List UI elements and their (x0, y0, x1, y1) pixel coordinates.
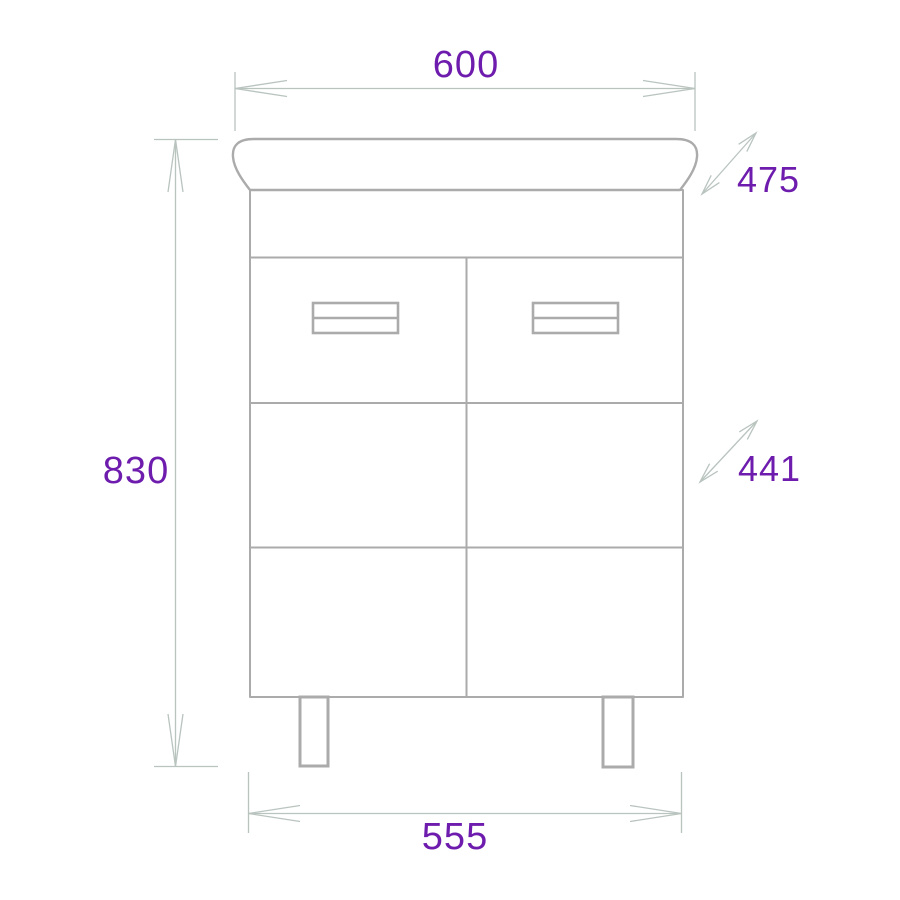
dimension-label-cabinet-width: 555 (422, 816, 488, 858)
dimension-cabinet-depth: 441 (700, 421, 801, 489)
vanity-dimension-drawing: 600 830 475 441 (0, 0, 900, 900)
left-door-handle (313, 303, 398, 333)
technical-drawing-canvas: 600 830 475 441 (0, 0, 900, 900)
dimension-overall-height: 830 (103, 140, 218, 767)
dimension-label-cabinet-depth: 441 (738, 448, 801, 489)
dimension-cabinet-width: 555 (249, 772, 682, 858)
vanity-cabinet (233, 139, 697, 767)
washbasin-top (233, 139, 697, 190)
right-leg (603, 697, 633, 767)
left-leg (300, 697, 328, 766)
dimension-basin-depth: 475 (702, 133, 800, 200)
dimension-label-top-width: 600 (433, 44, 499, 86)
dimension-label-overall-height: 830 (103, 450, 169, 492)
right-door-handle (533, 303, 618, 333)
dimension-top-width: 600 (235, 44, 695, 131)
dimension-label-basin-depth: 475 (737, 159, 800, 200)
